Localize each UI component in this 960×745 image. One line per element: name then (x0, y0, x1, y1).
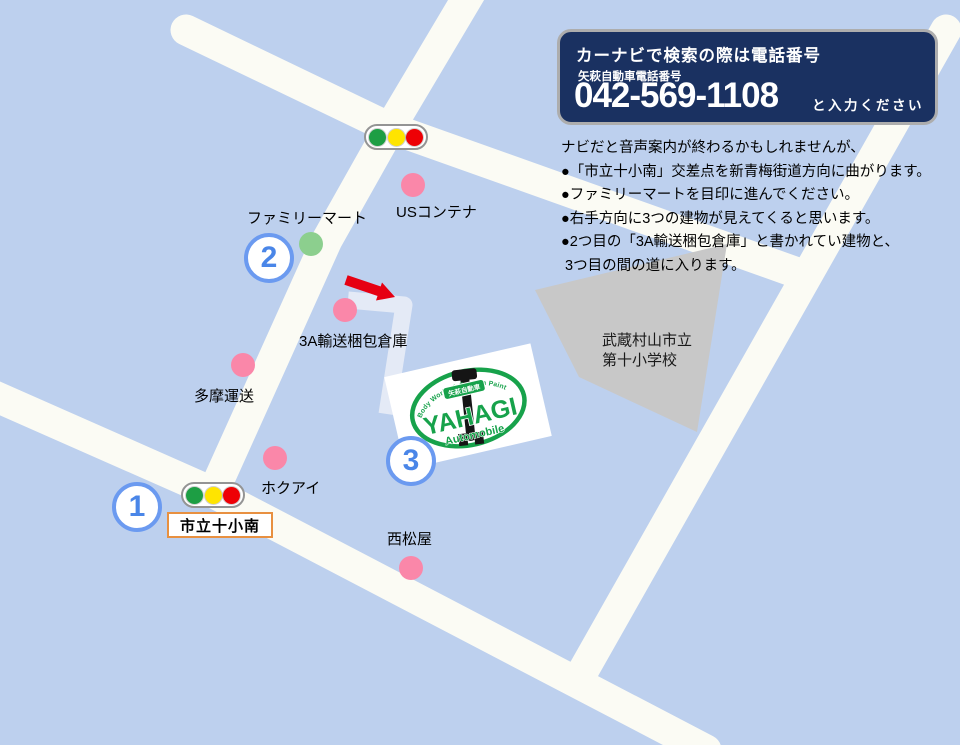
label-hokuai: ホクアイ (261, 477, 320, 498)
school-label-line2: 第十小学校 (602, 351, 692, 371)
dot-nishimatsuya (399, 556, 423, 580)
intersection-sign: 市立十小南 (167, 512, 273, 538)
red-lamp-icon (223, 487, 240, 504)
label-3a-warehouse: 3A輸送梱包倉庫 (299, 330, 407, 351)
dot-hokuai (263, 446, 287, 470)
traffic-light-icon-top (364, 124, 428, 150)
traffic-light-icon-bottom (181, 482, 245, 508)
phone-number: 042-569-1108 (574, 76, 778, 116)
dot-3a-warehouse (333, 298, 357, 322)
instructions-block: ナビだと音声案内が終わるかもしれませんが、 ●「市立十小南」交差点を新青梅街道方… (561, 137, 960, 278)
road-bottom-street (0, 394, 706, 745)
label-tama-transport: 多摩運送 (194, 385, 254, 406)
route-marker-1-number: 1 (129, 490, 146, 524)
yellow-lamp-icon (205, 487, 222, 504)
instruction-line: ●「市立十小南」交差点を新青梅街道方向に曲がります。 (561, 161, 960, 185)
label-us-container: USコンテナ (396, 201, 477, 222)
route-marker-2: 2 (244, 233, 294, 283)
dot-us-container (401, 173, 425, 197)
label-nishimatsuya: 西松屋 (387, 528, 432, 549)
label-family-mart: ファミリーマート (247, 207, 367, 228)
route-marker-3-number: 3 (403, 444, 420, 478)
instruction-line: ●右手方向に3つの建物が見えてくると思います。 (561, 208, 960, 232)
dot-tama-transport (231, 353, 255, 377)
school-label: 武蔵村山市立 第十小学校 (602, 331, 692, 371)
info-heading: カーナビで検索の際は電話番号 (576, 42, 821, 66)
school-label-line1: 武蔵村山市立 (602, 331, 692, 351)
green-lamp-icon (369, 129, 386, 146)
instruction-line: ●2つ目の「3A輸送梱包倉庫」と書かれてい建物と、 (561, 231, 960, 255)
route-marker-2-number: 2 (261, 241, 278, 275)
dot-family-mart (299, 232, 323, 256)
direction-map: USコンテナ ファミリーマート 3A輸送梱包倉庫 多摩運送 ホクアイ 西松屋 武… (0, 0, 960, 745)
instruction-line: 3つ目の間の道に入ります。 (561, 255, 960, 279)
green-lamp-icon (186, 487, 203, 504)
yellow-lamp-icon (388, 129, 405, 146)
route-marker-3: 3 (386, 436, 436, 486)
route-marker-1: 1 (112, 482, 162, 532)
phone-info-box: カーナビで検索の際は電話番号 矢萩自動車電話番号 042-569-1108 と入… (557, 29, 938, 125)
red-lamp-icon (406, 129, 423, 146)
instruction-line: ●ファミリーマートを目印に進んでください。 (561, 184, 960, 208)
instruction-line: ナビだと音声案内が終わるかもしれませんが、 (561, 137, 960, 161)
phone-suffix: と入力ください (812, 94, 924, 114)
